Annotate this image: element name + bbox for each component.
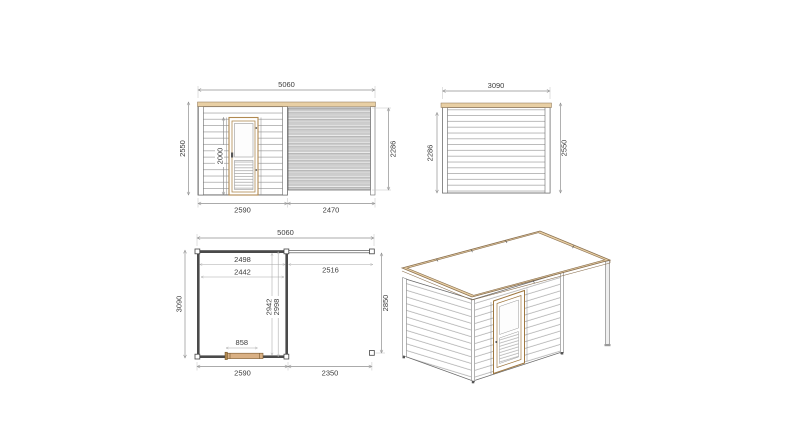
dim-plan-door-width: 858 (226, 338, 258, 348)
svg-text:5060: 5060 (277, 228, 294, 237)
front-left-corner-post (198, 107, 203, 196)
plan-wall-right (285, 250, 288, 358)
iso-view (402, 231, 611, 383)
svg-text:2516: 2516 (322, 266, 339, 275)
svg-text:2442: 2442 (234, 267, 251, 276)
front-elevation-view: 5060 2550 2000 2286 2590 (178, 80, 398, 215)
plan-wall-top (197, 250, 288, 253)
side-roof-fascia (441, 103, 552, 108)
plan-post-bottom-middle (284, 354, 289, 359)
front-roof-fascia (198, 102, 376, 107)
side-wall-siding (443, 108, 551, 194)
iso-base-foot-front (472, 381, 475, 384)
iso-front-corner-post (471, 299, 474, 382)
iso-canopy-post (606, 261, 610, 346)
dim-front-height: 2550 (178, 102, 189, 195)
svg-text:2590: 2590 (234, 206, 251, 215)
dim-plan-inner-width-a: 2498 (200, 255, 285, 265)
door-glass-pane (235, 124, 254, 158)
dim-front-width-total: 5060 (198, 80, 375, 98)
svg-text:2470: 2470 (323, 206, 340, 215)
plan-door-jamb (225, 352, 227, 359)
plan-wall-left (197, 250, 200, 358)
dim-side-width: 3090 (443, 81, 551, 99)
dim-plan-inner-width-b: 2442 (201, 267, 284, 277)
front-door (229, 118, 258, 196)
door-handle (231, 153, 233, 158)
plan-post-top-right (370, 249, 375, 254)
iso-base-foot-left (403, 356, 406, 359)
iso-base-foot-right (561, 352, 564, 355)
floor-plan-view: 2498 2442 2516 2942 2998 (175, 228, 391, 378)
dim-plan-depth: 3090 (175, 250, 186, 358)
dim-plan-canopy-depth: 2850 (376, 253, 391, 353)
svg-text:2286: 2286 (426, 145, 435, 162)
dim-plan-bottom-room: 2590 (197, 362, 288, 378)
svg-text:2550: 2550 (560, 140, 569, 157)
side-elevation-view: 3090 2286 2550 (426, 81, 569, 193)
svg-text:2850: 2850 (381, 295, 390, 312)
plan-post-bottom-left (195, 354, 200, 359)
dim-front-bottom-canopy: 2470 (288, 198, 376, 215)
svg-text:2590: 2590 (234, 369, 251, 378)
door-hinge-bottom (255, 169, 257, 171)
dim-side-front-height: 2550 (560, 103, 569, 193)
dim-front-bottom-room: 2590 (198, 198, 288, 215)
iso-door (491, 289, 527, 376)
drawing-sheet: 5060 2550 2000 2286 2590 (0, 0, 794, 446)
plan-post-canopy (370, 351, 375, 356)
plan-post-top-middle (284, 249, 289, 254)
iso-canopy-post-foot (605, 344, 611, 346)
svg-text:3090: 3090 (175, 296, 184, 313)
dim-plan-width-total: 5060 (197, 228, 374, 246)
technical-drawing-canvas: 5060 2550 2000 2286 2590 (0, 0, 794, 446)
dim-side-back-height: 2286 (426, 113, 438, 194)
back-wall-shaded (288, 108, 371, 190)
plan-door-leaf (225, 352, 263, 359)
svg-text:2000: 2000 (216, 148, 225, 165)
plan-post-top-left (195, 249, 200, 254)
side-right-corner-post (545, 108, 550, 194)
plan-canopy-beam (288, 250, 374, 252)
door-hinge-top (255, 127, 257, 129)
svg-text:2550: 2550 (178, 140, 187, 157)
dim-front-back-height: 2286 (372, 108, 398, 190)
dim-plan-inner-depth-b: 2998 (271, 252, 281, 357)
iso-right-corner-post (560, 272, 563, 354)
svg-text:5060: 5060 (278, 80, 295, 89)
svg-text:2498: 2498 (234, 255, 251, 264)
dim-plan-canopy-width: 2516 (289, 265, 373, 275)
svg-text:2350: 2350 (322, 369, 339, 378)
side-left-corner-post (443, 108, 448, 194)
iso-door-handle (495, 341, 497, 343)
svg-text:3090: 3090 (488, 81, 505, 90)
front-right-corner-post (371, 107, 376, 196)
iso-roof-top (407, 233, 605, 296)
svg-text:2998: 2998 (272, 299, 281, 316)
dim-plan-bottom-canopy: 2350 (288, 362, 372, 378)
svg-text:2286: 2286 (389, 141, 398, 158)
iso-left-corner-post (403, 278, 407, 358)
svg-text:858: 858 (236, 338, 249, 347)
door-louvers (235, 161, 254, 190)
iso-left-wall (404, 279, 473, 382)
front-middle-post (283, 107, 288, 196)
